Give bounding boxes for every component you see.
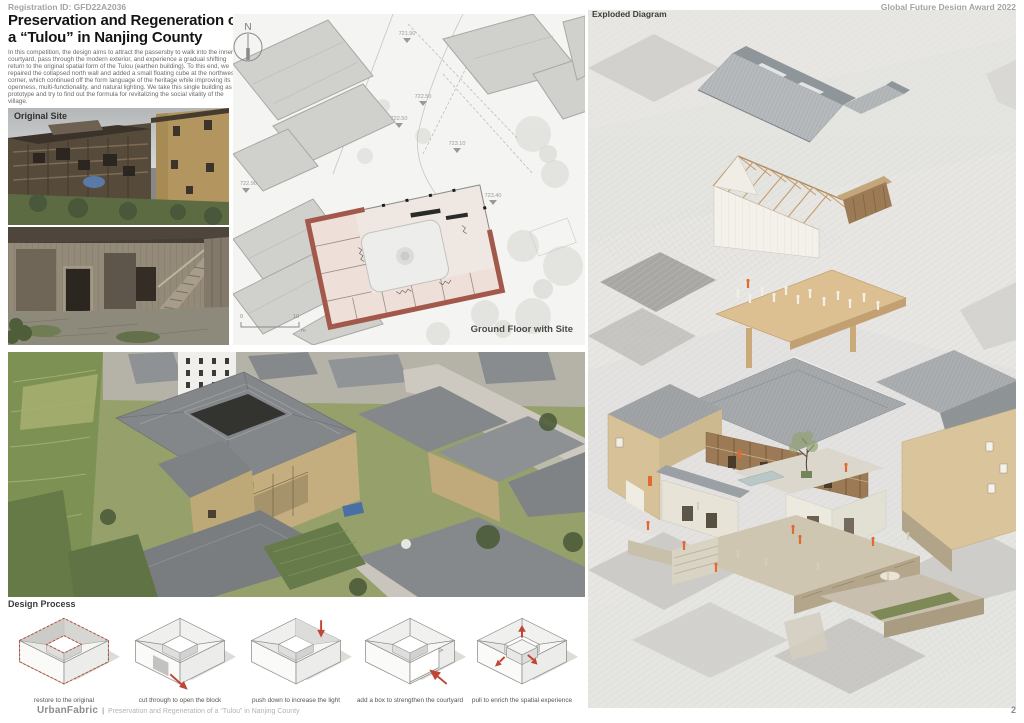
title-line-1: Preservation and Regeneration of xyxy=(8,13,248,30)
original-site-label: Original Site xyxy=(14,111,67,121)
step-3-diagram-push xyxy=(240,612,352,696)
photo-exterior-art xyxy=(8,108,229,225)
registration-id: Registration ID: GFD22A2036 xyxy=(8,2,126,12)
site-plan-drawing: N 721.90 722.50 722.50 723.10 722.90 723… xyxy=(233,14,585,345)
intro-paragraph: In this competition, the design aims to … xyxy=(8,49,238,105)
svg-text:723.40: 723.40 xyxy=(485,193,502,199)
design-process-label: Design Process xyxy=(8,599,76,609)
exploded-diagram-art xyxy=(588,10,1016,708)
title-line-2: a “Tulou” in Nanjing County xyxy=(8,30,248,47)
design-process-step-4 xyxy=(354,612,466,696)
design-process-step-2 xyxy=(124,612,236,696)
step-5-caption: pull to enrich the spatial experience xyxy=(452,697,592,704)
step-4-diagram-add-box xyxy=(354,612,466,696)
svg-text:721.90: 721.90 xyxy=(399,31,416,37)
aerial-photo-art xyxy=(8,352,585,597)
svg-text:722.50: 722.50 xyxy=(391,116,408,122)
photo-courtyard-art xyxy=(8,227,229,345)
site-plan: N 721.90 722.50 722.50 723.10 722.90 723… xyxy=(233,14,585,345)
svg-text:723.10: 723.10 xyxy=(449,141,466,147)
footer-separator: | xyxy=(102,708,104,715)
presentation-board: { "header": { "registration_id": "Regist… xyxy=(0,0,1024,723)
design-process-step-5 xyxy=(466,612,578,696)
footer: UrbanFabric | Preservation and Regenerat… xyxy=(37,705,300,716)
design-process-step-1 xyxy=(8,612,120,696)
aerial-photo xyxy=(8,352,585,597)
original-site-photo-exterior xyxy=(8,108,229,225)
footer-subtitle: Preservation and Regeneration of a “Tulo… xyxy=(108,708,300,715)
svg-text:m: m xyxy=(301,328,306,334)
svg-text:N: N xyxy=(244,22,251,33)
page-number: 2 xyxy=(1004,705,1016,715)
svg-text:10: 10 xyxy=(293,314,299,320)
svg-text:722.90: 722.90 xyxy=(240,181,257,187)
plan-caption: Ground Floor with Site xyxy=(471,324,573,335)
design-process-step-3 xyxy=(240,612,352,696)
step-2-diagram-cut xyxy=(124,612,236,696)
svg-text:722.50: 722.50 xyxy=(415,94,432,100)
exploded-diagram-panel xyxy=(588,10,1016,708)
svg-text:0: 0 xyxy=(240,314,243,320)
step-5-diagram-pull xyxy=(466,612,578,696)
page-title: Preservation and Regeneration of a “Tulo… xyxy=(8,13,248,46)
exploded-diagram-label: Exploded Diagram xyxy=(592,9,667,19)
original-site-photo-courtyard xyxy=(8,227,229,345)
step-1-diagram-restore xyxy=(8,612,120,696)
footer-brand: UrbanFabric xyxy=(37,705,98,716)
